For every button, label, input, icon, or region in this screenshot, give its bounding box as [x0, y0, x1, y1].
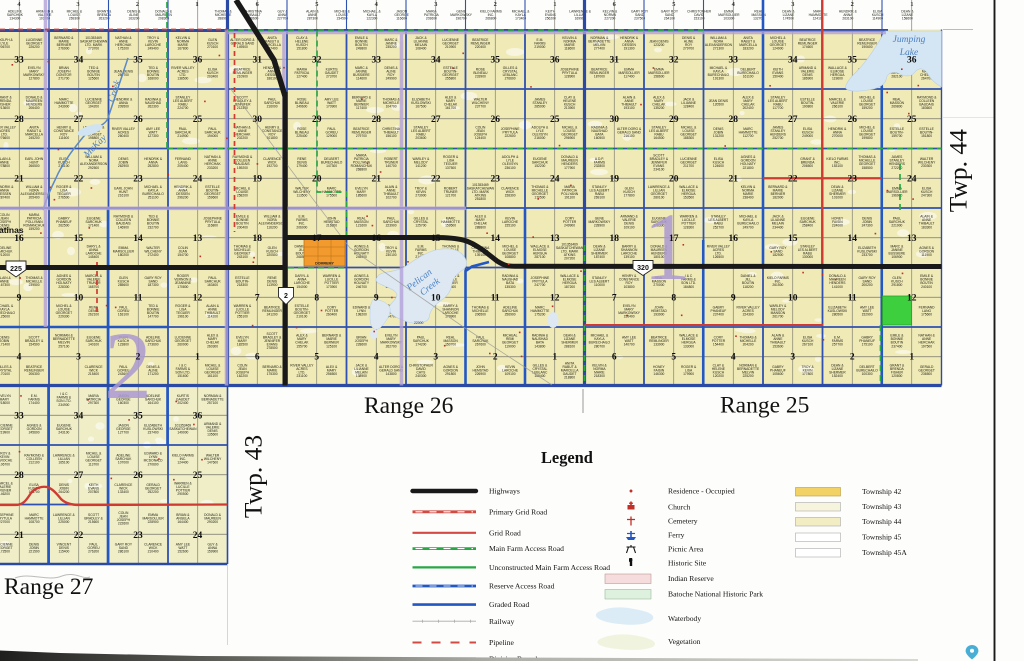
svg-text:EMILE &BONNIEBOUTIN237400: EMILE &BONNIEBOUTIN237400 [890, 334, 904, 349]
svg-text:27: 27 [74, 471, 84, 481]
svg-text:24: 24 [193, 531, 203, 541]
svg-text:Primary Grid Road: Primary Grid Road [489, 507, 547, 516]
svg-text:2: 2 [851, 1, 854, 8]
svg-text:KURTISGAUDET202400: KURTISGAUDET202400 [176, 394, 190, 405]
svg-text:13: 13 [550, 234, 560, 244]
svg-text:11: 11 [848, 293, 857, 303]
svg-text:Reserve Access Road: Reserve Access Road [489, 582, 555, 591]
svg-text:24: 24 [193, 174, 203, 184]
svg-text:Graded Road: Graded Road [489, 600, 529, 609]
svg-text:KURTISGAUDET273700: KURTISGAUDET273700 [325, 68, 339, 79]
svg-text:16: 16 [14, 234, 24, 244]
svg-text:21: 21 [728, 174, 738, 184]
svg-text:16: 16 [371, 234, 381, 244]
svg-text:ALAIN &ANNETHIBAULT193100: ALAIN &ANNETHIBAULT193100 [621, 96, 637, 111]
svg-text:GABRYPHANEUF237400: GABRYPHANEUF237400 [711, 306, 727, 317]
svg-text:33: 33 [728, 55, 738, 65]
svg-text:2: 2 [136, 1, 139, 8]
svg-text:15: 15 [74, 234, 84, 244]
svg-text:DENISJOBIN262900: DENISJOBIN262900 [118, 157, 129, 168]
svg-text:3: 3 [76, 352, 81, 362]
svg-text:9: 9 [374, 293, 379, 303]
svg-text:30: 30 [252, 115, 262, 125]
svg-text:25: 25 [193, 115, 203, 125]
svg-text:19: 19 [609, 174, 619, 184]
svg-text:4: 4 [374, 352, 379, 362]
svg-text:ELISAKUSCH247300: ELISAKUSCH247300 [921, 187, 933, 198]
svg-text:35: 35 [847, 55, 857, 65]
svg-text:27: 27 [788, 115, 798, 125]
svg-text:Main Farm Access Road: Main Farm Access Road [489, 544, 564, 553]
svg-text:22000: 22000 [414, 321, 424, 325]
svg-text:DENISJOBIN171400: DENISJOBIN171400 [0, 335, 10, 346]
svg-text:ALAIN &ANNETHIBAULT183300: ALAIN &ANNETHIBAULT183300 [919, 215, 935, 230]
svg-text:5: 5 [671, 352, 676, 362]
svg-text:23: 23 [133, 174, 143, 184]
svg-text:7: 7 [255, 293, 260, 303]
svg-text:18: 18 [252, 234, 262, 244]
svg-text:Unconstructed Main Farm Access: Unconstructed Main Farm Access Road [489, 563, 610, 572]
svg-text:26: 26 [490, 115, 500, 125]
svg-text:31: 31 [252, 55, 262, 65]
svg-text:33: 33 [371, 55, 381, 65]
svg-text:11: 11 [491, 293, 500, 303]
svg-text:24: 24 [907, 174, 917, 184]
svg-text:ALEX &MARYCHELAK260300: ALEX &MARYCHELAK260300 [206, 334, 220, 349]
svg-text:HONEYFAISIN224000: HONEYFAISIN224000 [832, 216, 845, 227]
svg-text:10: 10 [431, 293, 441, 303]
svg-text:30: 30 [609, 115, 619, 125]
svg-text:3: 3 [790, 352, 795, 362]
svg-text:7: 7 [612, 293, 617, 303]
svg-text:CLAY &HELENEKUSCH120200: CLAY &HELENEKUSCH120200 [712, 363, 726, 378]
svg-text:32: 32 [669, 55, 679, 65]
svg-text:Township 43: Township 43 [862, 502, 902, 511]
svg-text:9: 9 [731, 293, 736, 303]
svg-text:Waterbody: Waterbody [668, 614, 701, 623]
svg-text:ROBERTTRUNER140700: ROBERTTRUNER140700 [384, 157, 398, 168]
svg-text:DENISJOBIN264200: DENISJOBIN264200 [58, 483, 69, 494]
svg-text:17: 17 [669, 234, 679, 244]
svg-text:34: 34 [74, 411, 84, 421]
svg-text:33: 33 [14, 55, 24, 65]
svg-text:2: 2 [136, 352, 141, 362]
svg-text:25: 25 [550, 115, 560, 125]
svg-text:ALEX &MARYCHELAK161700: ALEX &MARYCHELAK161700 [444, 96, 458, 111]
svg-text:1: 1 [643, 193, 691, 300]
svg-text:1: 1 [195, 352, 200, 362]
svg-text:10: 10 [788, 293, 798, 303]
svg-text:26: 26 [133, 115, 143, 125]
svg-text:DENISJOBIN221500: DENISJOBIN221500 [29, 543, 40, 554]
svg-text:KEITHEVANS150400: KEITHEVANS150400 [772, 68, 784, 79]
svg-text:34: 34 [431, 55, 441, 65]
svg-text:32: 32 [312, 55, 322, 65]
svg-text:TROY &KEVIN273900: TROY &KEVIN273900 [415, 187, 428, 198]
svg-text:8: 8 [671, 293, 676, 303]
svg-text:ALEX &MARYCHELAK135200: ALEX &MARYCHELAK135200 [652, 96, 666, 111]
svg-text:27: 27 [74, 115, 84, 125]
svg-text:36: 36 [193, 55, 203, 65]
svg-text:3: 3 [791, 1, 794, 8]
svg-text:Township 42: Township 42 [862, 487, 902, 496]
svg-text:GABRYPHANEUF262500: GABRYPHANEUF262500 [56, 216, 72, 227]
svg-text:Vegetation: Vegetation [668, 637, 701, 646]
svg-text:BRIAN &ANGELA164400: BRIAN &ANGELA164400 [176, 513, 190, 524]
svg-text:COLINJEAN154700: COLINJEAN154700 [177, 246, 188, 257]
svg-text:17: 17 [312, 234, 322, 244]
svg-text:ALAIN &ANNETHIBAULT153600: ALAIN &ANNETHIBAULT153600 [770, 334, 786, 349]
svg-text:24: 24 [550, 174, 560, 184]
svg-text:EMILE &BONNIEBOUTIN200400: EMILE &BONNIEBOUTIN200400 [236, 215, 250, 230]
svg-text:1: 1 [910, 1, 913, 8]
svg-text:14: 14 [133, 234, 143, 244]
svg-text:26: 26 [847, 115, 857, 125]
svg-text:28: 28 [728, 115, 738, 125]
svg-text:2: 2 [104, 312, 152, 419]
svg-text:Twp. 44: Twp. 44 [944, 129, 973, 212]
svg-text:EMILE &BONNIEBOUTIN249800: EMILE &BONNIEBOUTIN249800 [355, 36, 369, 51]
svg-text:Church: Church [668, 503, 691, 512]
svg-text:DEAN &LIZANE174500: DEAN &LIZANE174500 [782, 9, 795, 20]
svg-text:14: 14 [490, 234, 500, 244]
svg-text:Township 45: Township 45 [862, 533, 902, 542]
svg-text:CLAY &HELENEKUSCH151800: CLAY &HELENEKUSCH151800 [295, 36, 309, 51]
svg-text:22: 22 [788, 174, 798, 184]
svg-text:ELISAKUSCH249000: ELISAKUSCH249000 [802, 127, 814, 138]
svg-text:6: 6 [612, 352, 617, 362]
svg-text:25: 25 [193, 471, 203, 481]
svg-text:Range 26: Range 26 [364, 393, 454, 419]
svg-text:Township 45A: Township 45A [862, 548, 907, 557]
svg-text:2: 2 [494, 1, 497, 8]
svg-text:20: 20 [312, 174, 322, 184]
svg-text:ALEX &MARYCHELAK288800: ALEX &MARYCHELAK288800 [474, 215, 488, 230]
svg-text:36: 36 [907, 55, 917, 65]
svg-text:14: 14 [847, 234, 857, 244]
svg-text:ROBERTTRUNER121700: ROBERTTRUNER121700 [444, 187, 458, 198]
svg-text:12: 12 [907, 293, 917, 303]
svg-text:28: 28 [371, 115, 381, 125]
svg-text:1: 1 [909, 352, 914, 362]
svg-text:Jumping: Jumping [893, 35, 926, 45]
svg-text:DENISJOBIN247300: DENISJOBIN247300 [862, 216, 873, 227]
svg-text:Cemetery: Cemetery [668, 517, 698, 526]
svg-text:1: 1 [553, 1, 556, 8]
svg-text:DOMREMY: DOMREMY [315, 262, 334, 266]
svg-text:GABRYPHANEUF105600: GABRYPHANEUF105600 [770, 365, 786, 376]
svg-text:Indian Reserve: Indian Reserve [668, 574, 714, 583]
svg-text:13: 13 [193, 234, 203, 244]
svg-text:atinas: atinas [0, 225, 24, 235]
svg-text:26: 26 [133, 471, 143, 481]
svg-text:3: 3 [433, 352, 438, 362]
svg-text:22: 22 [74, 174, 84, 184]
svg-text:ALEX &MARYCHELAK202400: ALEX &MARYCHELAK202400 [741, 96, 755, 111]
svg-text:Highways: Highways [489, 487, 520, 496]
svg-text:29: 29 [669, 115, 679, 125]
svg-text:320: 320 [637, 265, 649, 272]
svg-text:Ferry: Ferry [668, 531, 685, 540]
svg-text:2: 2 [850, 352, 855, 362]
svg-text:ALAIN &ANNETHIBAULT102700: ALAIN &ANNETHIBAULT102700 [383, 185, 399, 200]
svg-text:35: 35 [490, 55, 500, 65]
svg-text:MARC &JANINE235200: MARC &JANINE235200 [385, 38, 399, 49]
svg-text:21: 21 [371, 174, 381, 184]
svg-text:28: 28 [14, 115, 24, 125]
svg-text:18: 18 [609, 234, 619, 244]
svg-text:15: 15 [431, 234, 441, 244]
svg-text:11: 11 [134, 293, 143, 303]
svg-text:Railway: Railway [489, 617, 515, 626]
svg-text:Twp. 43: Twp. 43 [239, 435, 268, 518]
svg-text:TROY &KEVIN230100: TROY &KEVIN230100 [385, 246, 398, 257]
svg-text:22: 22 [431, 174, 441, 184]
svg-text:13: 13 [907, 234, 917, 244]
svg-text:25: 25 [907, 115, 917, 125]
svg-text:ELISAKUSCH267100: ELISAKUSCH267100 [802, 335, 814, 346]
svg-text:36: 36 [193, 411, 203, 421]
svg-text:34: 34 [74, 55, 84, 65]
svg-text:28: 28 [14, 471, 24, 481]
svg-text:Pipeline: Pipeline [489, 638, 515, 647]
svg-text:5: 5 [672, 1, 675, 8]
svg-text:16: 16 [728, 234, 738, 244]
svg-text:225: 225 [10, 266, 22, 273]
svg-text:Range 25: Range 25 [720, 393, 809, 419]
svg-text:Township 44: Township 44 [862, 517, 902, 526]
svg-text:Legend: Legend [541, 448, 593, 467]
svg-text:5: 5 [315, 1, 318, 8]
svg-text:4: 4 [731, 352, 736, 362]
svg-text:23: 23 [490, 174, 500, 184]
svg-text:10: 10 [74, 293, 84, 303]
svg-text:1: 1 [195, 1, 198, 8]
svg-text:23: 23 [847, 174, 857, 184]
svg-text:21: 21 [14, 174, 24, 184]
svg-text:3: 3 [76, 1, 79, 8]
svg-text:34: 34 [788, 55, 798, 65]
svg-text:5: 5 [314, 352, 319, 362]
svg-text:36: 36 [550, 55, 560, 65]
svg-text:21: 21 [14, 531, 24, 541]
svg-text:Grid Road: Grid Road [489, 528, 521, 537]
svg-text:20: 20 [669, 174, 679, 184]
svg-text:HONEYFAISIN146300: HONEYFAISIN146300 [653, 365, 666, 376]
svg-text:RENEDENIS179400: RENEDENIS179400 [296, 157, 307, 168]
svg-text:CLAY &HELENEKUSCH213900: CLAY &HELENEKUSCH213900 [563, 96, 577, 111]
svg-text:9: 9 [17, 293, 22, 303]
svg-text:2: 2 [284, 293, 288, 300]
svg-text:ELISAKUSCH124600: ELISAKUSCH124600 [713, 157, 725, 168]
svg-text:6: 6 [255, 352, 260, 362]
svg-text:35: 35 [133, 411, 143, 421]
svg-text:ALEX &MARY256500: ALEX &MARY256500 [326, 365, 338, 376]
svg-text:12: 12 [193, 293, 203, 303]
svg-text:Historic Site: Historic Site [668, 559, 707, 568]
svg-text:Batoche National Historic Park: Batoche National Historic Park [668, 590, 763, 599]
svg-text:Picnic Area: Picnic Area [668, 545, 704, 554]
svg-text:27: 27 [431, 115, 441, 125]
svg-text:KEITHEVANS207800: KEITHEVANS207800 [88, 483, 100, 494]
svg-text:1: 1 [552, 352, 557, 362]
svg-text:22: 22 [74, 531, 84, 541]
svg-text:EMILE &BONNIEBOUTIN240100: EMILE &BONNIEBOUTIN240100 [920, 274, 934, 289]
svg-text:33: 33 [14, 411, 24, 421]
svg-text:GUY &ANNA159900: GUY &ANNA159900 [207, 543, 218, 554]
svg-text:12: 12 [550, 293, 560, 303]
svg-text:DENISJOBIN131200: DENISJOBIN131200 [713, 127, 724, 138]
svg-text:35: 35 [133, 55, 143, 65]
svg-text:TROY &KEVIN177800: TROY &KEVIN177800 [801, 365, 814, 376]
svg-text:4: 4 [17, 352, 22, 362]
svg-text:2: 2 [493, 352, 498, 362]
svg-text:Residence - Occupied: Residence - Occupied [668, 487, 735, 496]
svg-text:ALEX &MARYCHELAK155700: ALEX &MARYCHELAK155700 [295, 334, 309, 349]
svg-text:3: 3 [434, 1, 437, 8]
svg-text:19: 19 [252, 174, 262, 184]
svg-text:15: 15 [788, 234, 798, 244]
svg-text:29: 29 [312, 115, 322, 125]
svg-text:23: 23 [133, 531, 143, 541]
svg-text:31: 31 [609, 55, 619, 65]
svg-text:RENEDENIS113900: RENEDENIS113900 [267, 276, 278, 287]
svg-text:DEAN &LIZANE158600: DEAN &LIZANE158600 [901, 9, 914, 20]
svg-text:ELISAKUSCH203400: ELISAKUSCH203400 [207, 68, 219, 79]
svg-text:8: 8 [314, 293, 319, 303]
